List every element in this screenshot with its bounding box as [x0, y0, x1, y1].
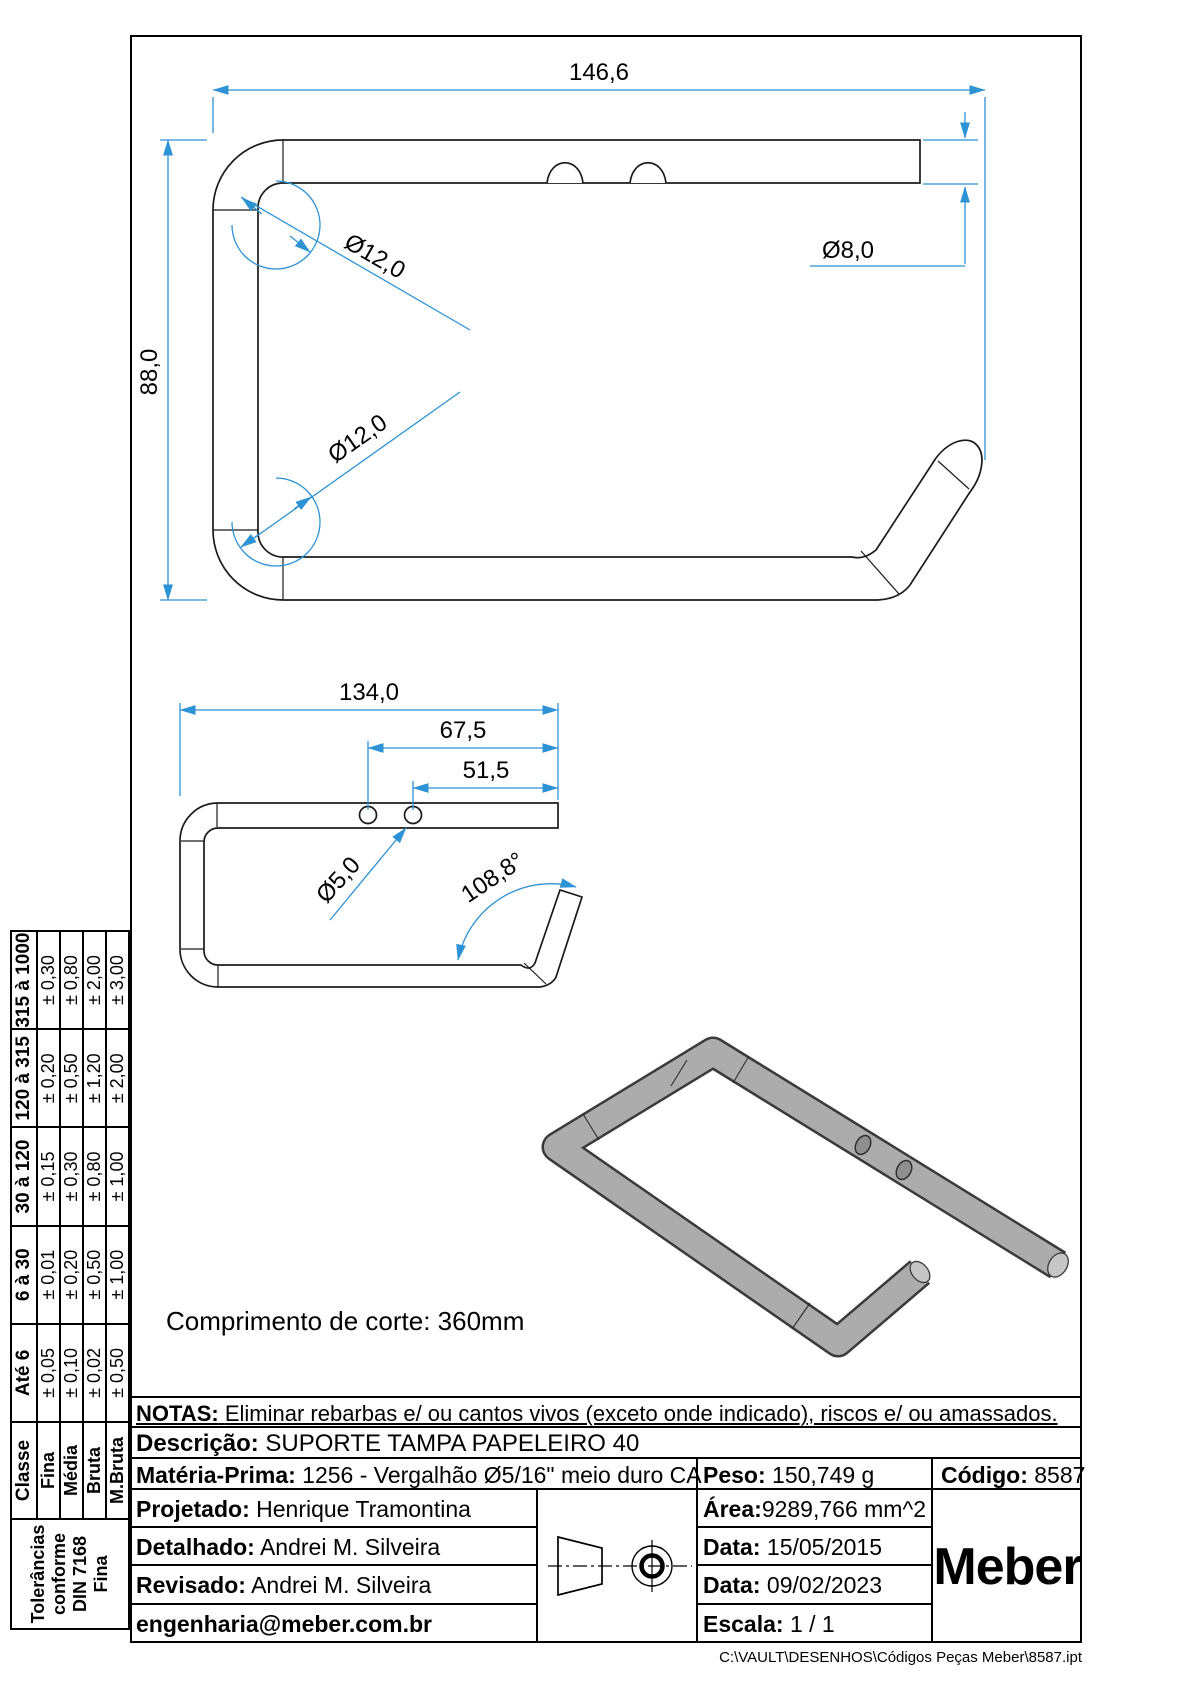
detailed-by-value: Andrei M. Silveira	[260, 1534, 440, 1560]
notes-label: NOTAS:	[136, 1401, 219, 1426]
description-value: SUPORTE TAMPA PAPELEIRO 40	[265, 1430, 639, 1457]
reviewed-by-row: Revisado: Andrei M. Silveira	[130, 1566, 538, 1605]
reviewed-by-label: Revisado:	[136, 1572, 246, 1598]
weight-cell: Peso: 150,749 g	[696, 1459, 933, 1490]
date1-value: 15/05/2015	[767, 1534, 882, 1560]
area-label: Área:	[703, 1496, 762, 1522]
code-value: 8587	[1034, 1462, 1085, 1488]
company-logo-cell: Meber	[933, 1490, 1082, 1643]
scale-value: 1 / 1	[790, 1611, 835, 1637]
code-label: Código:	[941, 1462, 1028, 1488]
company-logo: Meber	[933, 1537, 1081, 1597]
tolerance-table: Tolerâncias conforme DIN 7168 Fina Class…	[10, 930, 130, 1630]
tolerance-range-col-3: 30 à 120 ± 0,15 ± 0,30 ± 0,80 ± 1,00	[12, 1128, 128, 1226]
cut-length-note: Comprimento de corte: 360mm	[166, 1306, 524, 1337]
weight-value: 150,749 g	[772, 1462, 874, 1488]
email-row: engenharia@meber.com.br	[130, 1605, 538, 1643]
tolerance-class-column: Classe Fina Média Bruta M.Bruta	[12, 1423, 128, 1518]
detailed-by-row: Detalhado: Andrei M. Silveira	[130, 1528, 538, 1566]
weight-label: Peso:	[703, 1462, 766, 1488]
designed-by-row: Projetado: Henrique Tramontina	[130, 1490, 538, 1528]
date2-label: Data:	[703, 1572, 761, 1598]
description-row: Descrição: SUPORTE TAMPA PAPELEIRO 40	[130, 1428, 1082, 1459]
file-path: C:\VAULT\DESENHOS\Códigos Peças Meber\85…	[719, 1649, 1082, 1666]
notes-row: NOTAS: Eliminar rebarbas e/ ou cantos vi…	[130, 1396, 1082, 1428]
date2-value: 09/02/2023	[767, 1572, 882, 1598]
tolerance-range-col-2: 6 à 30 ± 0,01 ± 0,20 ± 0,50 ± 1,00	[12, 1227, 128, 1325]
date1-label: Data:	[703, 1534, 761, 1560]
drawing-sheet: Comprimento de corte: 360mm NOTAS: Elimi…	[0, 0, 1190, 1684]
tolerance-range-col-4: 120 à 315 ± 0,20 ± 0,50 ± 1,20 ± 2,00	[12, 1030, 128, 1128]
code-cell: Código: 8587	[933, 1459, 1082, 1490]
scale-label: Escala:	[703, 1611, 784, 1637]
detailed-by-label: Detalhado:	[136, 1534, 255, 1560]
raw-material-label: Matéria-Prima:	[136, 1462, 296, 1488]
tolerance-range-col-5: 315 à 1000 ± 0,30 ± 0,80 ± 2,00 ± 3,00	[12, 932, 128, 1030]
data-column: Área:9289,766 mm^2 Data: 15/05/2015 Data…	[696, 1490, 933, 1643]
raw-material-value: 1256 - Vergalhão Ø5/16" meio duro CA	[302, 1462, 701, 1488]
tolerance-range-col-1: Até 6 ± 0,05 ± 0,10 ± 0,02 ± 0,50	[12, 1325, 128, 1423]
date1-row: Data: 15/05/2015	[698, 1528, 931, 1566]
designed-by-label: Projetado:	[136, 1496, 250, 1522]
description-label: Descrição:	[136, 1430, 259, 1457]
designed-by-value: Henrique Tramontina	[256, 1496, 471, 1522]
notes-text: Eliminar rebarbas e/ ou cantos vivos (ex…	[225, 1401, 1058, 1426]
reviewed-by-value: Andrei M. Silveira	[251, 1572, 431, 1598]
area-value: 9289,766 mm^2	[762, 1496, 926, 1522]
scale-row: Escala: 1 / 1	[698, 1605, 931, 1642]
email-value: engenharia@meber.com.br	[136, 1611, 432, 1637]
tolerance-standard-label: Tolerâncias conforme DIN 7168 Fina	[12, 1518, 128, 1628]
area-row: Área:9289,766 mm^2	[698, 1490, 931, 1528]
date2-row: Data: 09/02/2023	[698, 1566, 931, 1605]
